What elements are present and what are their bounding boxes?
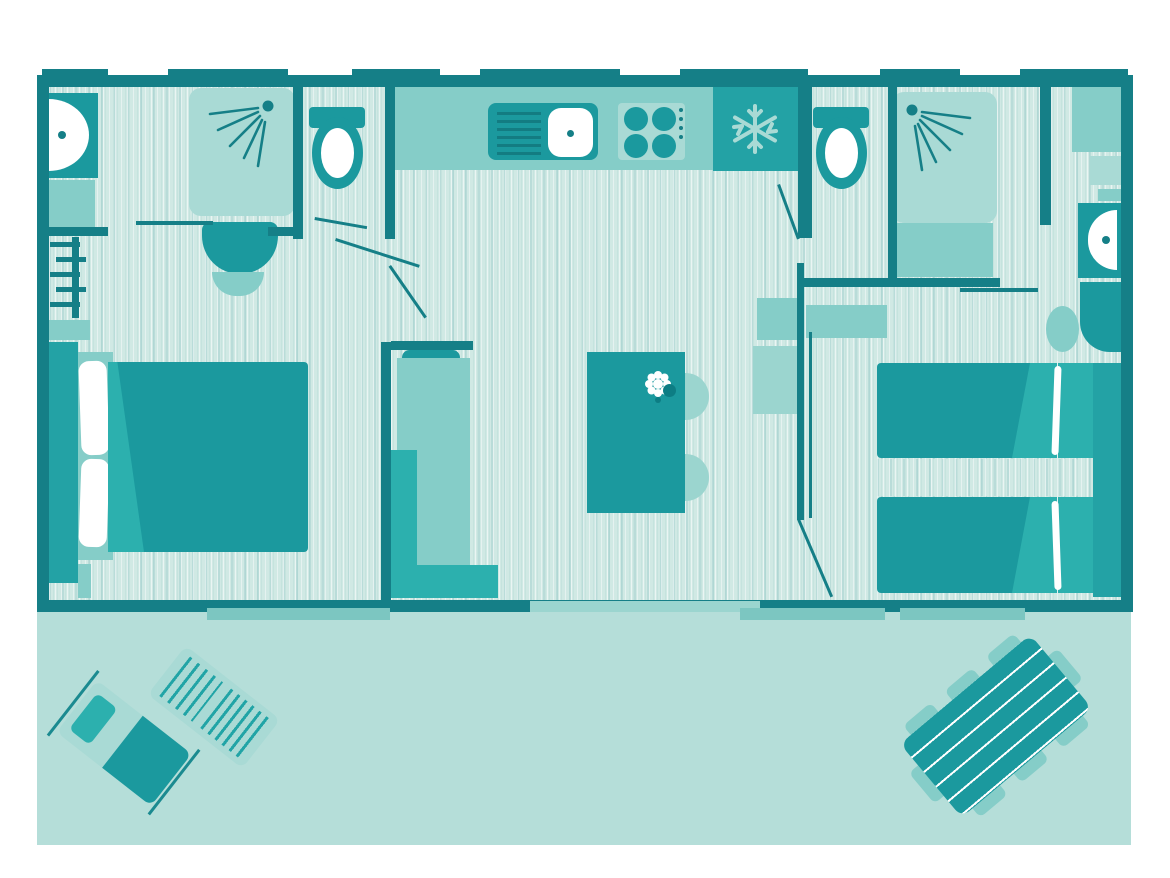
window-tab-bottom bbox=[740, 608, 885, 620]
outer-wall bbox=[37, 75, 1133, 612]
window-tab-bottom bbox=[900, 608, 1025, 620]
window-tab-top bbox=[42, 69, 108, 79]
window-tab-top bbox=[680, 69, 808, 79]
window-tab-top bbox=[880, 69, 960, 79]
floor-plan-canvas bbox=[0, 0, 1170, 878]
window-tab-top bbox=[168, 69, 288, 79]
window-tab-bottom bbox=[207, 608, 390, 620]
window-tab-top bbox=[1020, 69, 1128, 79]
window-tab-top bbox=[480, 69, 620, 79]
sliding-door-band bbox=[530, 601, 760, 612]
window-tab-top bbox=[352, 69, 440, 79]
